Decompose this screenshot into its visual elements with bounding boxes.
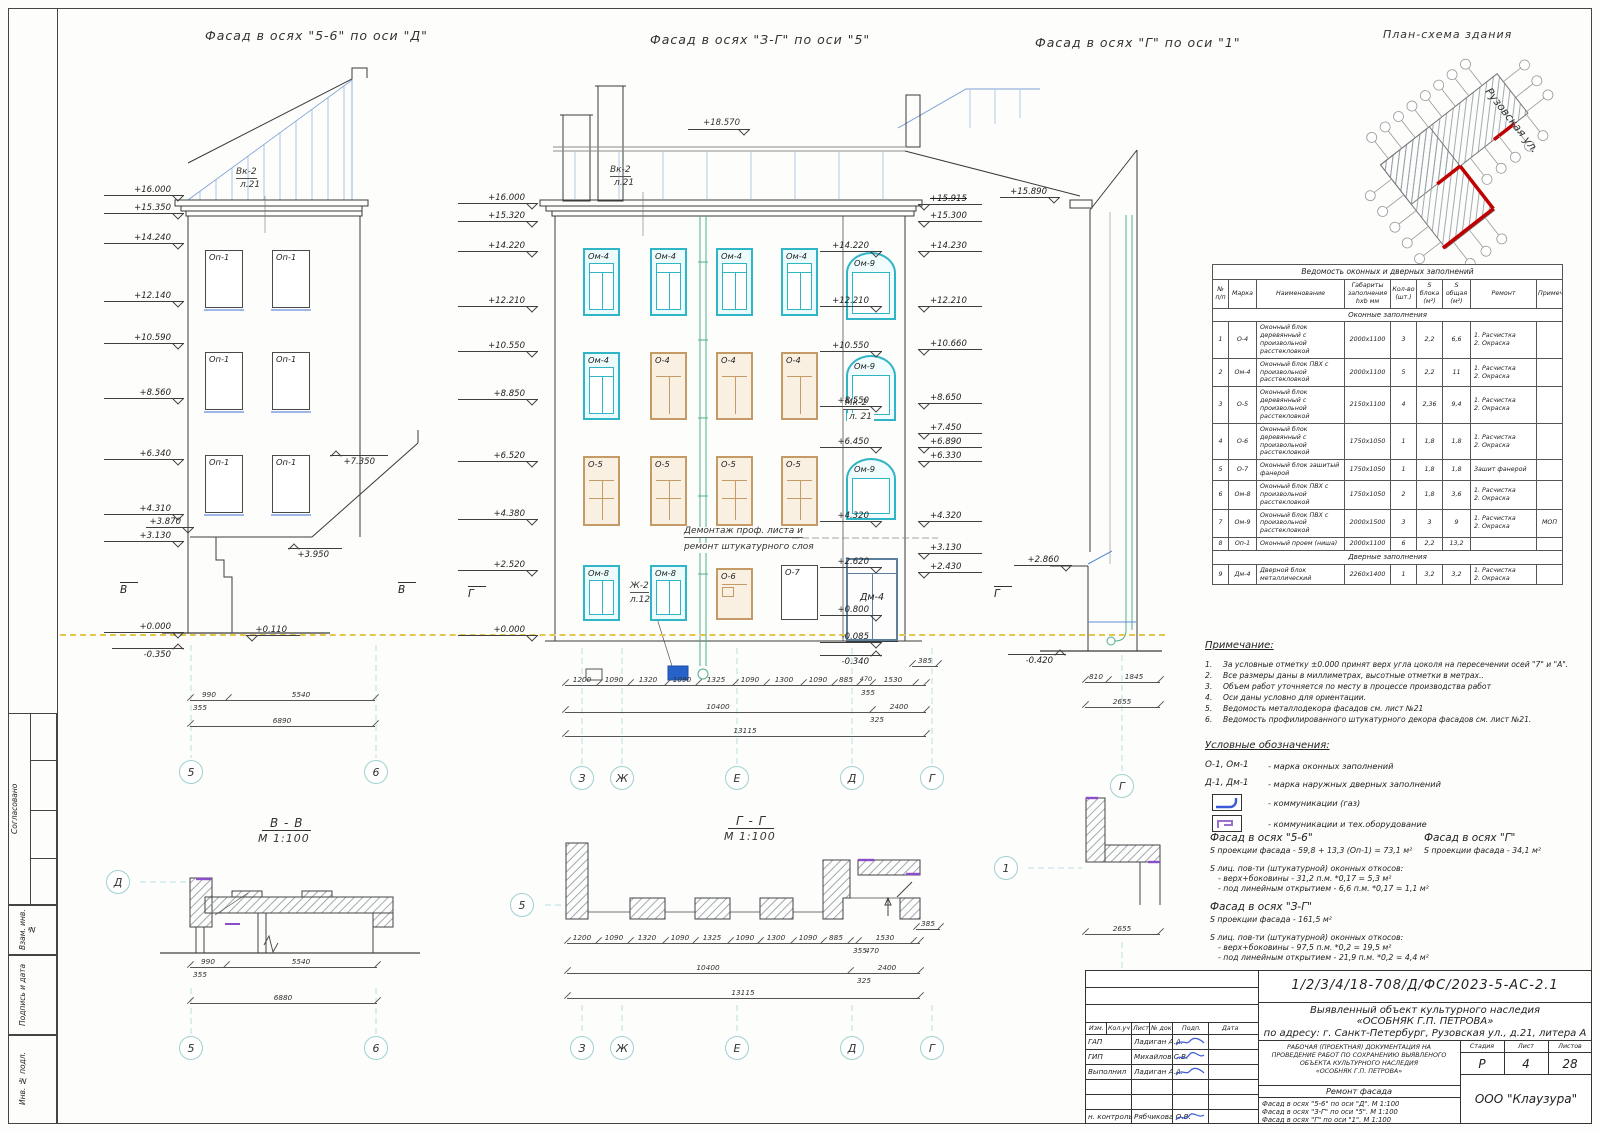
table-row: 2Ом-4Оконный блок ПВХ с произвольной рас…: [1213, 358, 1563, 387]
area-line: S лиц. пов-ти (штукатурной) оконных отко…: [1210, 933, 1403, 942]
table-cell: 6,6: [1443, 322, 1471, 358]
elevation-mark: +2.860: [1014, 552, 1072, 566]
window-op1: Оп-1: [205, 352, 243, 410]
elevation-mark: +6.340: [104, 446, 184, 460]
table-cell: 2,2: [1417, 538, 1443, 551]
sheet-label: Лист: [1518, 1043, 1534, 1051]
elevation-mark: -0.420: [1008, 654, 1066, 668]
elevation-mark: -0.085: [820, 629, 882, 643]
section-bb-scale: М 1:100: [258, 832, 310, 845]
table-cell: [1537, 564, 1563, 585]
elevation-mark: +8.550: [820, 393, 882, 407]
axis-d: Д: [840, 1036, 864, 1060]
window-om4: Ом-4: [781, 248, 818, 316]
dim-row: 1200 1090 1320 1090 1325 1090 1300 1090 …: [565, 685, 926, 686]
table-cell: 3: [1417, 509, 1443, 538]
elevation-mark: +14.220: [458, 238, 538, 252]
dim-row: 13115: [565, 736, 926, 737]
drawing-sheet: Согласовано Взам. инв. № Подпись и дата …: [0, 0, 1600, 1132]
table-title-row: Ведомость оконных и дверных заполнений: [1213, 265, 1563, 280]
table-cell: 1750x1050: [1345, 480, 1391, 509]
dim-row: 6880: [190, 1003, 377, 1004]
note-item: 5.Ведомость металлодекора фасадов см. ли…: [1205, 703, 1423, 714]
elevation-mark: +3.870: [146, 514, 194, 528]
role: н. контроль: [1088, 1113, 1133, 1122]
window-om8: Ом-8: [583, 565, 620, 621]
elevation-mark: +12.210: [458, 293, 538, 307]
dim-row: 810 1845: [1085, 682, 1160, 683]
table-title: Ведомость оконных и дверных заполнений: [1213, 265, 1563, 280]
table-cell: [1537, 538, 1563, 551]
role: ГАП: [1088, 1038, 1102, 1047]
elevation-mark: +6.520: [458, 448, 538, 462]
elevation-mark: +4.320: [820, 508, 882, 522]
elevation-mark: +10.550: [458, 338, 538, 352]
table-cell: 2150x1100: [1345, 387, 1391, 423]
axis-g: Г: [920, 766, 944, 790]
plan-title: План-схема здания: [1383, 28, 1512, 41]
elevation-mark: +15.350: [104, 200, 184, 214]
table-cell: 3,2: [1443, 564, 1471, 585]
elevation-mark: +14.220: [820, 238, 882, 252]
dim-row: 13115: [567, 998, 920, 999]
axis-e: Е: [725, 766, 749, 790]
window-o4: О-4: [781, 352, 818, 420]
schedule-table: Ведомость оконных и дверных заполнений №…: [1212, 264, 1563, 585]
elevation-mark: +8.850: [458, 386, 538, 400]
table-row: 5О-7Оконный блок зашитый фанерой1750x105…: [1213, 460, 1563, 481]
col-koluch: Кол.уч: [1108, 1025, 1130, 1033]
table-cell: 2,2: [1417, 358, 1443, 387]
section-cut-b: В: [398, 582, 416, 596]
legend-mark: О-1, Ом-1: [1205, 760, 1249, 770]
strip-line: [30, 858, 57, 859]
table-cell: Дм-4: [1229, 564, 1257, 585]
table-cell: [1537, 460, 1563, 481]
window-om8: Ом-8: [650, 565, 687, 621]
elevation-mark: +6.450: [820, 434, 882, 448]
table-row: 7Ом-9Оконный блок ПВХ с произвольной рас…: [1213, 509, 1563, 538]
dim-row: 385: [912, 666, 938, 667]
table-cell: 1,8: [1443, 423, 1471, 459]
table-cell: О-5: [1229, 387, 1257, 423]
roof-mark-sheet: л.21: [614, 179, 634, 189]
sill: [204, 514, 244, 516]
table-cell: [1471, 538, 1537, 551]
table-cell: 1: [1213, 322, 1229, 358]
stage-label: Стадия: [1470, 1043, 1494, 1051]
table-cell: 1: [1391, 423, 1417, 459]
area-line: - под линейным открытием - 6,6 п.м. *0,1…: [1218, 884, 1429, 893]
sill: [204, 309, 244, 311]
table-cell: Оконный блок зашитый фанерой: [1257, 460, 1345, 481]
col-header: № п/п: [1213, 280, 1229, 309]
area-line: S проекции фасада - 59,8 + 13,3 (Оп-1) =…: [1210, 846, 1412, 855]
col-ndok: № док.: [1151, 1025, 1174, 1033]
table-section-label: Дверные заполнения: [1213, 550, 1563, 564]
table-cell: Оконный блок ПВХ с произвольной расстекл…: [1257, 358, 1345, 387]
axis-z: З: [570, 766, 594, 790]
legend-mark: Д-1, Дм-1: [1205, 778, 1249, 788]
facade3-title: Фасад в осях "Г" по оси "1": [1035, 35, 1241, 50]
doc-desc1: РАБОЧАЯ (ПРОЕКТНАЯ) ДОКУМЕНТАЦИЯ НА: [1287, 1044, 1431, 1052]
table-row: 6Ом-8Оконный блок ПВХ с произвольной рас…: [1213, 480, 1563, 509]
table-cell: 2: [1213, 358, 1229, 387]
signature: [1174, 1066, 1206, 1078]
window-o5: О-5: [650, 456, 687, 526]
facade2-title: Фасад в осях "З-Г" по оси "5": [650, 32, 870, 47]
axis-zh: Ж: [610, 766, 634, 790]
elevation-mark: +4.310: [104, 501, 184, 515]
doc-number: 1/2/3/4/18-708/Д/ФС/2023-5-АС-2.1: [1291, 978, 1558, 993]
table-cell: Ом-8: [1229, 480, 1257, 509]
sheets-value: 28: [1562, 1057, 1577, 1071]
table-cell: Оконный блок деревянный с произвольной р…: [1257, 387, 1345, 423]
dim-row: 10400 2400 325: [567, 973, 920, 974]
col-header: Габариты заполнения hxb мм: [1345, 280, 1391, 309]
axis-6: 6: [364, 760, 388, 784]
table-cell: 1,8: [1443, 460, 1471, 481]
table-cell: 1750x1050: [1345, 423, 1391, 459]
elevation-mark: -0.340: [820, 655, 882, 669]
table-cell: 1750x1050: [1345, 460, 1391, 481]
table-row: 4О-6Оконный блок деревянный с произвольн…: [1213, 423, 1563, 459]
table-cell: Ом-9: [1229, 509, 1257, 538]
table-cell: 3,6: [1443, 480, 1471, 509]
col-izm: Изм.: [1089, 1025, 1104, 1033]
table-cell: 7: [1213, 509, 1229, 538]
dim-row: 6890: [190, 726, 375, 727]
table-cell: Оконный проем (ниша): [1257, 538, 1345, 551]
table-cell: 5: [1213, 460, 1229, 481]
col-header: Марка: [1229, 280, 1257, 309]
window-om4: Ом-4: [650, 248, 687, 316]
table-cell: 5: [1391, 358, 1417, 387]
elevation-mark: +16.000: [104, 182, 184, 196]
table-cell: Дверной блок металлический: [1257, 564, 1345, 585]
roof-mark-sheet: л.21: [240, 181, 260, 191]
object-name1: Выявленный объект культурного наследия: [1310, 1005, 1540, 1016]
axis-g: Г: [920, 1036, 944, 1060]
table-cell: 1. Расчистка 2. Окраска: [1471, 358, 1537, 387]
area-line: S проекции фасада - 34,1 м²: [1424, 846, 1541, 855]
note-item: 2.Все размеры даны в миллиметрах, высотн…: [1205, 670, 1484, 681]
col-header: S блока (м²): [1417, 280, 1443, 309]
elevation-mark: +0.110: [246, 622, 300, 636]
table-cell: 3: [1213, 387, 1229, 423]
elevation-mark: +6.330: [918, 448, 982, 462]
window-op1: Оп-1: [272, 455, 310, 513]
window-o7: О-7: [781, 565, 818, 620]
elevation-mark: +6.890: [918, 434, 982, 448]
window-o4: О-4: [650, 352, 687, 420]
elevation-mark: +4.320: [918, 508, 982, 522]
zh-mark: Ж-2: [630, 582, 649, 593]
axis-6: 6: [364, 1036, 388, 1060]
table-row: 1О-4Оконный блок деревянный с произвольн…: [1213, 322, 1563, 358]
elevation-mark: -0.350: [112, 648, 184, 662]
zh-mark-sheet: л.12: [630, 596, 650, 606]
strip-label-soglasovano: Согласовано: [10, 713, 28, 905]
table-cell: 6: [1391, 538, 1417, 551]
roof-mark: Вк-2: [236, 168, 257, 179]
elevation-mark: +10.590: [104, 330, 184, 344]
area-f56-title: Фасад в осях "5-6": [1210, 832, 1313, 844]
area-f3g-title: Фасад в осях "З-Г": [1210, 901, 1312, 913]
table-cell: Оконный блок деревянный с произвольной р…: [1257, 423, 1345, 459]
area-line: - под линейным открытием - 21,9 п.м. *0,…: [1218, 953, 1429, 962]
table-cell: 1,8: [1417, 460, 1443, 481]
window-om9: Ом-9: [846, 252, 896, 320]
col-header: Ремонт: [1471, 280, 1537, 309]
signature: [1174, 1051, 1206, 1063]
col-podp: Подп.: [1182, 1025, 1201, 1033]
section-gg-scale: М 1:100: [724, 830, 776, 843]
elevation-mark: +10.550: [820, 338, 882, 352]
ground-line: [60, 634, 1165, 636]
object-name2: «ОСОБНЯК Г.П. ПЕТРОВА»: [1357, 1016, 1494, 1027]
table-cell: 1. Расчистка 2. Окраска: [1471, 387, 1537, 423]
window-o5: О-5: [716, 456, 753, 526]
dim-row: 2655: [1085, 934, 1160, 935]
table-cell: [1537, 423, 1563, 459]
window-op1: Оп-1: [205, 455, 243, 513]
legend-text: - коммуникации (газ): [1268, 798, 1360, 808]
tech-equipment-icon: [1212, 815, 1242, 832]
role: Выполнил: [1088, 1068, 1126, 1077]
sheet-list3: Фасад в осях "Г" по оси "1". М 1:100: [1262, 1116, 1391, 1124]
mk-mark-sheet: л. 21: [847, 413, 874, 423]
table-cell: 2: [1391, 480, 1417, 509]
elevation-mark: +7.450: [918, 420, 982, 434]
col-data: Дата: [1222, 1025, 1238, 1033]
table-cell: 2,36: [1417, 387, 1443, 423]
doc-desc3: ОБЪЕКТА КУЛЬТУРНОГО НАСЛЕДИЯ: [1300, 1060, 1418, 1068]
elevation-mark: +10.660: [918, 336, 982, 350]
strip-line: [30, 760, 57, 761]
top-elevation: +18.570: [688, 116, 750, 130]
elevation-mark: +14.240: [104, 230, 184, 244]
axis-5: 5: [179, 760, 203, 784]
sheet-list2: Фасад в осях "З-Г" по оси "5". М 1:100: [1262, 1108, 1398, 1116]
legend-text: - марка наружных дверных заполнений: [1268, 779, 1441, 789]
table-cell: Оп-1: [1229, 538, 1257, 551]
table-cell: 6: [1213, 480, 1229, 509]
window-om4: Ом-4: [716, 248, 753, 316]
table-cell: [1537, 358, 1563, 387]
roof-mark: Вк-2: [610, 166, 631, 177]
work-title: Ремонт фасада: [1326, 1087, 1392, 1097]
dim-row: 990 5540 355: [190, 700, 375, 701]
table-cell: Оконный блок деревянный с произвольной р…: [1257, 322, 1345, 358]
elevation-mark: +2.520: [458, 557, 538, 571]
elevation-mark: +14.230: [918, 238, 982, 252]
window-op1: Оп-1: [272, 250, 310, 308]
table-cell: 3: [1391, 322, 1417, 358]
table-cell: МОП: [1537, 509, 1563, 538]
elevation-mark: +12.140: [104, 288, 184, 302]
table-cell: 2,2: [1417, 322, 1443, 358]
gas-icon: [1212, 794, 1242, 811]
sill: [271, 309, 311, 311]
axis-5: 5: [510, 893, 534, 917]
table-cell: Оконный блок ПВХ с произвольной расстекл…: [1257, 480, 1345, 509]
table-cell: 9: [1213, 564, 1229, 585]
elevation-mark: +16.000: [458, 190, 538, 204]
table-cell: [1537, 387, 1563, 423]
table-cell: 1,8: [1417, 480, 1443, 509]
area-line: S проекции фасада - 161,5 м²: [1210, 915, 1332, 924]
signature: [1174, 1036, 1206, 1048]
elevation-mark: +2.620: [820, 554, 882, 568]
col-header: Примечание: [1537, 280, 1563, 309]
strip-line: [30, 810, 57, 811]
notes-title: Примечание:: [1205, 640, 1274, 651]
table-cell: [1537, 480, 1563, 509]
window-op1: Оп-1: [205, 250, 243, 308]
legend-text: - коммуникации и тех.оборудование: [1268, 819, 1427, 829]
table-cell: 1,8: [1417, 423, 1443, 459]
sill: [271, 411, 311, 413]
col-header: Кол-во (шт.): [1391, 280, 1417, 309]
note-item: 3.Объем работ уточняется по месту в проц…: [1205, 681, 1491, 692]
col-header: Наименование: [1257, 280, 1345, 309]
elevation-mark: +15.300: [918, 208, 982, 222]
doc-desc2: ПРОВЕДЕНИЕ РАБОТ ПО СОХРАНЕНИЮ ВЫЯВЛЕНОГ…: [1272, 1052, 1447, 1060]
elevation-mark: +12.210: [918, 293, 982, 307]
table-cell: 2000x1500: [1345, 509, 1391, 538]
elevation-mark: +15.890: [1000, 184, 1060, 198]
table-cell: Ом-4: [1229, 358, 1257, 387]
table-body: Оконные заполнения1О-4Оконный блок дерев…: [1213, 308, 1563, 585]
dim-row: 2655: [1085, 707, 1160, 708]
strip-label-podpis: Подпись и дата: [18, 956, 36, 1034]
sheets-label: Листов: [1558, 1043, 1582, 1051]
elevation-mark: +3.130: [104, 528, 184, 542]
axis-d: Д: [106, 870, 130, 894]
stage-value: Р: [1478, 1057, 1485, 1071]
strip-divider: [30, 713, 31, 905]
table-cell: 2000x1100: [1345, 358, 1391, 387]
table-cell: 1. Расчистка 2. Окраска: [1471, 480, 1537, 509]
doc-desc4: «ОСОБНЯК Г.П. ПЕТРОВА»: [1316, 1068, 1402, 1076]
demontage-note: Демонтаж проф. листа и: [684, 527, 803, 538]
strip-label-vzam: Взам. инв. №: [18, 906, 36, 954]
table-cell: 8: [1213, 538, 1229, 551]
table-cell: О-7: [1229, 460, 1257, 481]
table-header-row: № п/п Марка Наименование Габариты заполн…: [1213, 280, 1563, 309]
dim-row: 385: [916, 929, 940, 930]
table-row: 8Оп-1Оконный проем (ниша)2000x110062,213…: [1213, 538, 1563, 551]
axis-5: 5: [179, 1036, 203, 1060]
window-o5: О-5: [781, 456, 818, 526]
window-om4: Ом-4: [583, 248, 620, 316]
table-cell: 9: [1443, 509, 1471, 538]
elevation-mark: +15.320: [458, 208, 538, 222]
elevation-mark: +7.350: [330, 455, 388, 469]
strip-label-inv: Инв. № подл.: [18, 1036, 36, 1122]
elevation-mark: +3.130: [918, 540, 982, 554]
table-cell: 1. Расчистка 2. Окраска: [1471, 322, 1537, 358]
table-cell: 1: [1391, 564, 1417, 585]
section-cut-g: Г: [468, 586, 486, 600]
note-item: 4.Оси даны условно для ориентации.: [1205, 692, 1366, 703]
table-cell: 2260x1400: [1345, 564, 1391, 585]
elevation-mark: +2.430: [918, 559, 982, 573]
elevation-mark: +15.915: [918, 191, 982, 205]
dim-row: 10400 2400 325: [565, 712, 926, 713]
company-name: ООО "Клаузура": [1475, 1092, 1577, 1106]
table-cell: 1: [1391, 460, 1417, 481]
table-cell: 9,4: [1443, 387, 1471, 423]
sheet-list1: Фасад в осях "5-6" по оси "Д". М 1:100: [1262, 1100, 1399, 1108]
col-list: Лист: [1133, 1025, 1149, 1033]
table-cell: Оконный блок ПВХ с произвольной расстекл…: [1257, 509, 1345, 538]
area-line: S лиц. пов-ти (штукатурной) оконных отко…: [1210, 864, 1403, 873]
table-cell: Зашит фанерой: [1471, 460, 1537, 481]
elevation-mark: +0.000: [458, 622, 538, 636]
dim-row: 990 5540 355: [190, 967, 377, 968]
facade1-title: Фасад в осях "5-6" по оси "Д": [205, 28, 428, 43]
table-cell: 4: [1391, 387, 1417, 423]
note-item: 1.За условные отметку ±0.000 принят верх…: [1205, 659, 1568, 670]
col-header: S общая (м²): [1443, 280, 1471, 309]
dim-row: 1200 1090 1320 1090 1325 1090 1300 1090 …: [567, 943, 920, 944]
note-item: 6.Ведомость профилированного штукатурног…: [1205, 714, 1531, 725]
demontage-note2: ремонт штукатурного слоя: [684, 543, 814, 553]
legend-text: - марка оконных заполнений: [1268, 761, 1393, 771]
table-cell: 2000x1100: [1345, 538, 1391, 551]
table-section-row: Дверные заполнения: [1213, 550, 1563, 564]
window-o4: О-4: [716, 352, 753, 420]
sheet-value: 4: [1522, 1057, 1530, 1071]
axis-d: Д: [840, 766, 864, 790]
table-section-label: Оконные заполнения: [1213, 308, 1563, 322]
section-bb-title: В - В: [262, 816, 311, 830]
window-op1: Оп-1: [272, 352, 310, 410]
area-line: - верх+боковины - 31,2 п.м. *0,17 = 5,3 …: [1218, 874, 1391, 883]
axis-zh: Ж: [610, 1036, 634, 1060]
object-address: по адресу: г. Санкт-Петербург, Рузовская…: [1264, 1028, 1587, 1039]
table-cell: 1. Расчистка 2. Окраска: [1471, 423, 1537, 459]
elevation-mark: +8.560: [104, 385, 184, 399]
elevation-mark: +0.000: [104, 619, 184, 633]
window-o5: О-5: [583, 456, 620, 526]
axis-g: Г: [1110, 774, 1134, 798]
window-o6: О-6: [716, 568, 753, 620]
table-cell: 2000x1100: [1345, 322, 1391, 358]
table-cell: 3: [1391, 509, 1417, 538]
elevation-mark: +0.800: [820, 602, 882, 616]
table-cell: 1. Расчистка 2. Окраска: [1471, 509, 1537, 538]
table-cell: [1537, 322, 1563, 358]
elevation-mark: +4.380: [458, 506, 538, 520]
table-section-row: Оконные заполнения: [1213, 308, 1563, 322]
table-row: 3О-5Оконный блок деревянный с произвольн…: [1213, 387, 1563, 423]
signature: [1174, 1110, 1206, 1124]
table-cell: 3,2: [1417, 564, 1443, 585]
table-row: 9Дм-4Дверной блок металлический2260x1400…: [1213, 564, 1563, 585]
elevation-mark: +3.950: [288, 548, 342, 562]
axis-e: Е: [725, 1036, 749, 1060]
section-gg-title: Г - Г: [728, 814, 774, 828]
window-om4: Ом-4: [583, 352, 620, 420]
elevation-mark: +12.210: [820, 293, 882, 307]
table-cell: О-6: [1229, 423, 1257, 459]
legend-title: Условные обозначения:: [1205, 740, 1330, 751]
table-cell: 1. Расчистка 2. Окраска: [1471, 564, 1537, 585]
table-cell: 11: [1443, 358, 1471, 387]
